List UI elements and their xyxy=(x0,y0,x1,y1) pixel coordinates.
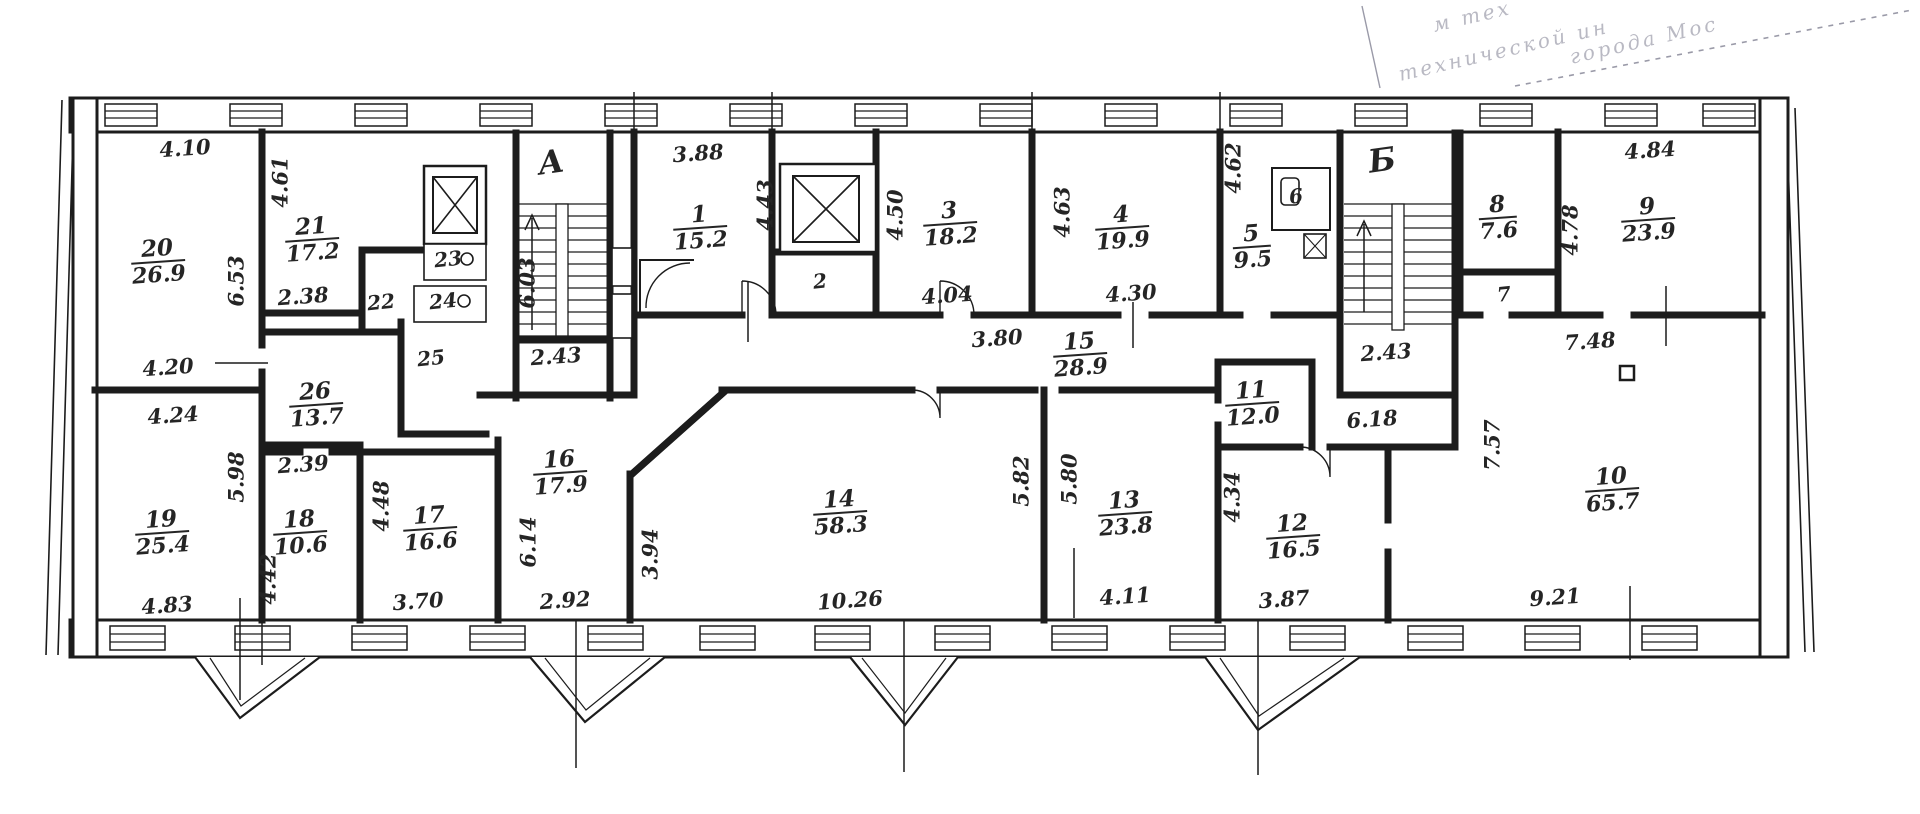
dim-6-53: 6.53 xyxy=(224,255,249,306)
dim-3-70: 3.70 xyxy=(392,587,445,616)
staircase-a-letter: А xyxy=(535,141,566,182)
staircase-b-letter: Б xyxy=(1366,139,1398,180)
room-label-4: 4 19.9 xyxy=(1094,201,1151,255)
dim-4-04: 4.04 xyxy=(921,281,974,310)
room-label-20: 20 26.9 xyxy=(130,235,187,289)
room-label-14: 14 58.3 xyxy=(812,486,869,540)
dim-2-43-a: 2.43 xyxy=(530,342,583,371)
room-label-16: 16 17.9 xyxy=(532,446,589,500)
dim-4-10: 4.10 xyxy=(159,134,212,163)
dim-4-63: 4.63 xyxy=(1050,186,1075,237)
floor-plan-drawing xyxy=(0,0,1920,814)
dim-4-62: 4.62 xyxy=(1221,142,1246,193)
room-label-22: 22 xyxy=(366,289,396,316)
door-arc-icon xyxy=(912,390,940,418)
door-arc-icon xyxy=(1300,447,1330,477)
room-label-12: 12 16.5 xyxy=(1265,510,1322,564)
room-label-1: 1 15.2 xyxy=(672,201,729,255)
elevator-shaft-2 xyxy=(780,164,876,252)
dim-4-48: 4.48 xyxy=(369,480,394,531)
room-label-26: 26 13.7 xyxy=(288,378,345,432)
room-label-19: 19 25.4 xyxy=(134,506,191,560)
room-label-17: 17 16.6 xyxy=(402,502,459,556)
dim-4-78: 4.78 xyxy=(1558,204,1583,255)
dim-2-92: 2.92 xyxy=(539,586,592,615)
dim-4-43: 4.43 xyxy=(753,179,778,230)
room-label-25: 25 xyxy=(416,345,446,372)
room-area: 26.9 xyxy=(131,261,186,289)
dim-10-26: 10.26 xyxy=(816,585,883,615)
dim-5-98: 5.98 xyxy=(224,451,249,502)
room-label-21: 21 17.2 xyxy=(284,213,341,267)
dim-6-14: 6.14 xyxy=(516,516,541,567)
dim-3-88: 3.88 xyxy=(672,139,725,168)
column-marker xyxy=(1620,366,1634,380)
room-label-18: 18 10.6 xyxy=(272,506,329,560)
dim-7-57: 7.57 xyxy=(1480,419,1505,470)
room-label-3: 3 18.2 xyxy=(922,197,979,251)
room-label-10: 10 65.7 xyxy=(1584,463,1641,517)
sink-icon xyxy=(458,295,470,307)
dim-4-42: 4.42 xyxy=(256,553,281,604)
dim-6-03: 6.03 xyxy=(515,257,540,308)
staircase-b xyxy=(1344,204,1455,330)
dim-4-11: 4.11 xyxy=(1099,582,1152,611)
dim-5-80: 5.80 xyxy=(1057,453,1082,504)
dim-9-21: 9.21 xyxy=(1529,583,1582,612)
room-label-13: 13 23.8 xyxy=(1097,487,1154,541)
floor-plan-scan: 20 26.9 21 17.2 26 13.7 19 25.4 18 10.6 … xyxy=(0,0,1920,814)
room-label-11: 11 12.0 xyxy=(1224,377,1281,431)
room-label-24: 24 xyxy=(428,288,458,315)
dim-4-61: 4.61 xyxy=(268,156,293,207)
sink-icon xyxy=(461,253,473,265)
dim-3-94: 3.94 xyxy=(638,528,663,579)
dim-4-83: 4.83 xyxy=(141,591,194,620)
dim-4-50: 4.50 xyxy=(883,189,908,240)
dim-2-43-b: 2.43 xyxy=(1360,338,1413,367)
room-label-5: 5 9.5 xyxy=(1231,221,1273,274)
dim-3-80: 3.80 xyxy=(971,324,1024,353)
dim-4-24: 4.24 xyxy=(147,401,200,430)
dim-4-34: 4.34 xyxy=(1220,471,1245,522)
dim-6-18: 6.18 xyxy=(1346,405,1399,434)
dim-5-82: 5.82 xyxy=(1009,455,1034,506)
room-label-2: 2 xyxy=(812,268,828,293)
dim-4-30: 4.30 xyxy=(1105,279,1158,308)
door-arc-icon xyxy=(646,263,690,308)
dim-7-48: 7.48 xyxy=(1564,327,1617,356)
room-label-8: 8 7.6 xyxy=(1477,192,1519,245)
room-label-23: 23 xyxy=(433,246,463,273)
dim-4-84: 4.84 xyxy=(1624,136,1677,165)
bay-windows xyxy=(195,657,1360,730)
room-label-15: 15 28.9 xyxy=(1052,328,1109,382)
room-label-7: 7 xyxy=(1496,281,1512,306)
room-label-9: 9 23.9 xyxy=(1620,193,1677,247)
dim-2-39: 2.39 xyxy=(277,450,330,479)
dim-4-20: 4.20 xyxy=(142,353,195,382)
elevator-shaft-1 xyxy=(424,166,486,244)
room-label-6: 6 xyxy=(1288,183,1304,208)
dim-2-38: 2.38 xyxy=(277,282,330,311)
dim-3-87: 3.87 xyxy=(1258,585,1311,614)
